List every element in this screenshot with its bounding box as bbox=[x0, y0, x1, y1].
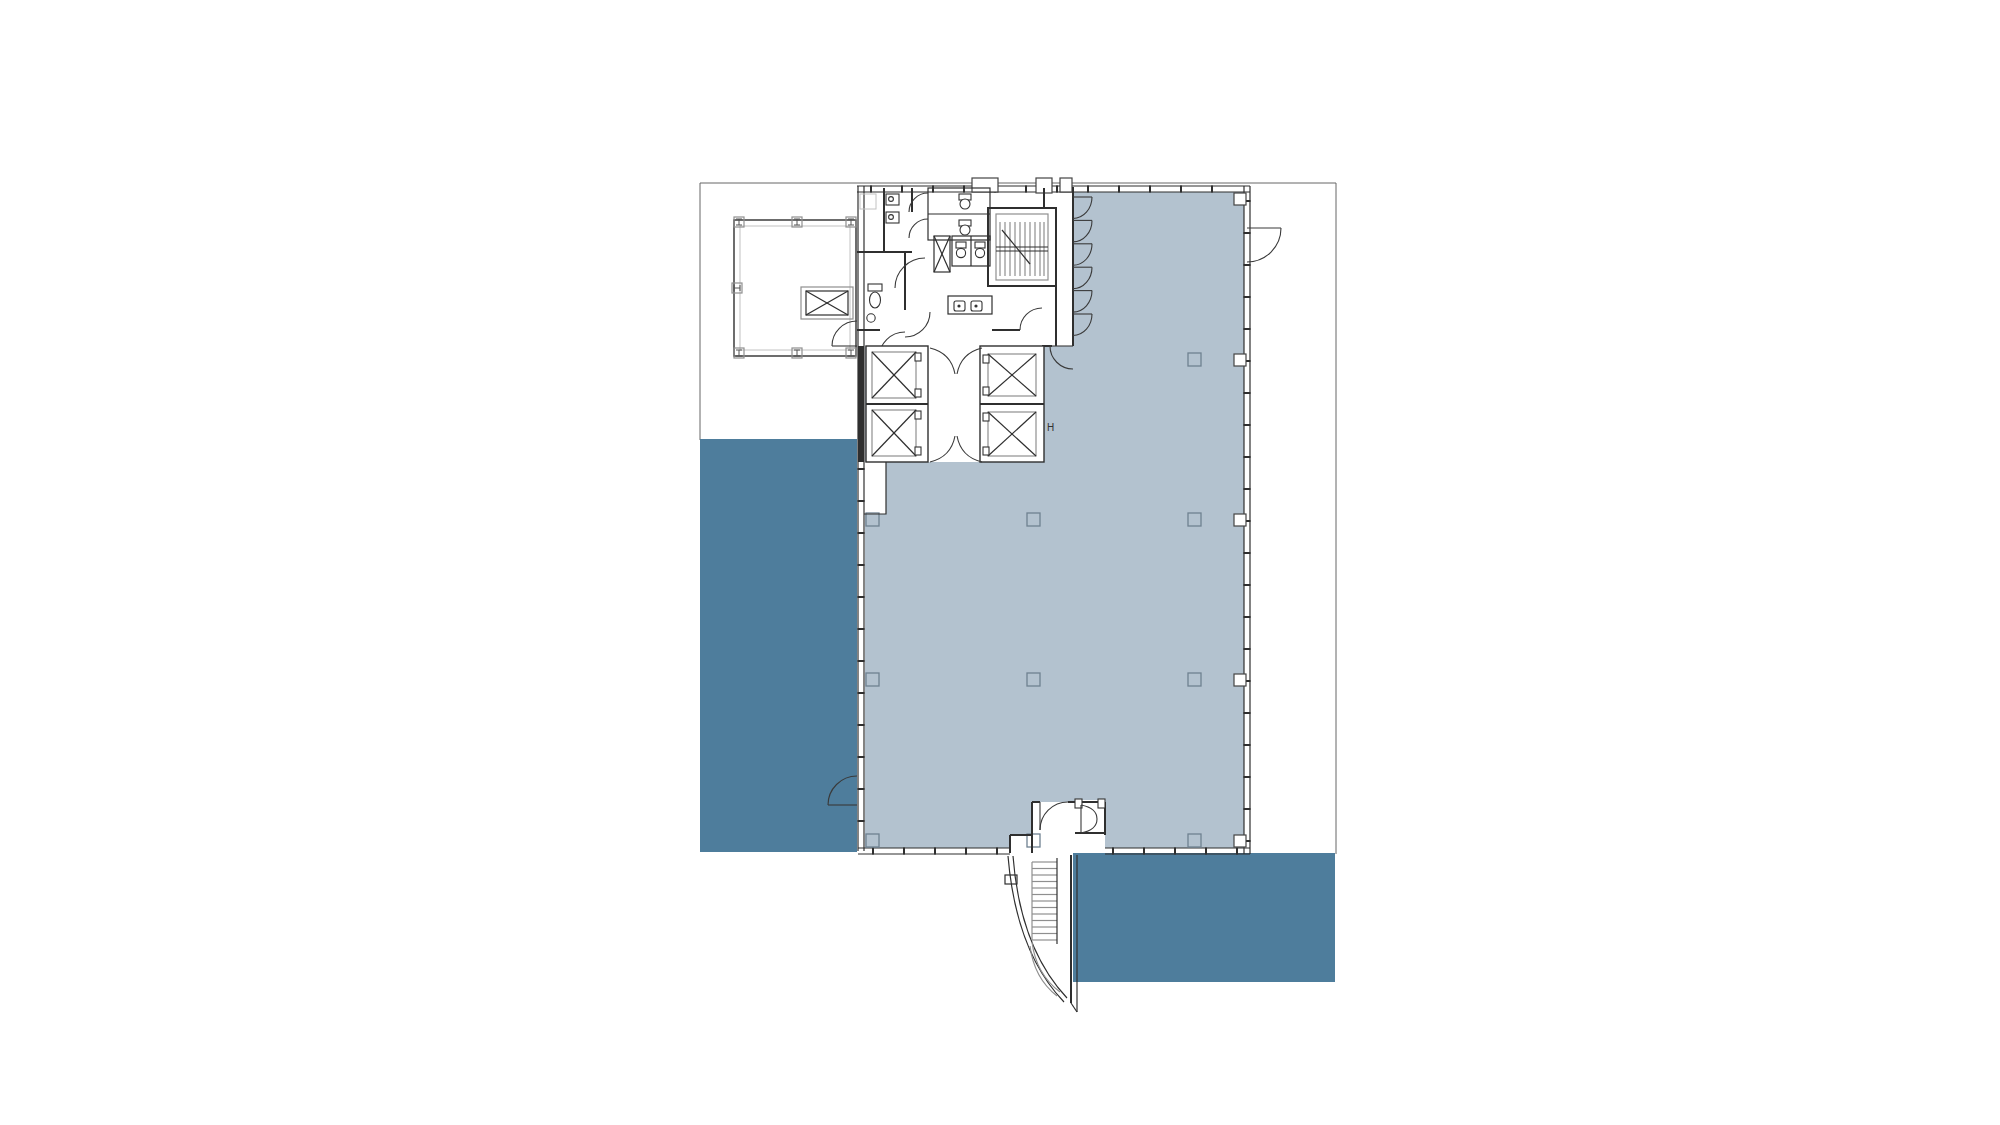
facade-west bbox=[858, 186, 864, 851]
facade-column bbox=[1234, 354, 1246, 366]
shaded-zone-south bbox=[1073, 853, 1335, 982]
core-pocket bbox=[864, 462, 886, 514]
facade-column-cap bbox=[1060, 178, 1072, 192]
facade-column bbox=[1234, 835, 1246, 847]
floor-plan-canvas: H bbox=[0, 0, 2000, 1125]
exterior-stair bbox=[1005, 855, 1077, 1012]
facade-column bbox=[1234, 514, 1246, 526]
terrace-outline bbox=[734, 220, 856, 356]
facade-column-cap bbox=[972, 178, 998, 192]
facade-column bbox=[1234, 674, 1246, 686]
facade-north bbox=[857, 186, 1250, 192]
elevator-label: H bbox=[1047, 422, 1054, 433]
shaded-zone-west bbox=[700, 439, 857, 852]
page-background: H bbox=[0, 0, 2000, 1125]
stair-wall-tip bbox=[1071, 1003, 1077, 1012]
facade-column bbox=[1234, 193, 1246, 205]
elevator-lobby bbox=[928, 346, 980, 462]
east-facade-door bbox=[1247, 228, 1281, 262]
vestibule-notch bbox=[1010, 835, 1032, 853]
terrace bbox=[732, 217, 857, 358]
